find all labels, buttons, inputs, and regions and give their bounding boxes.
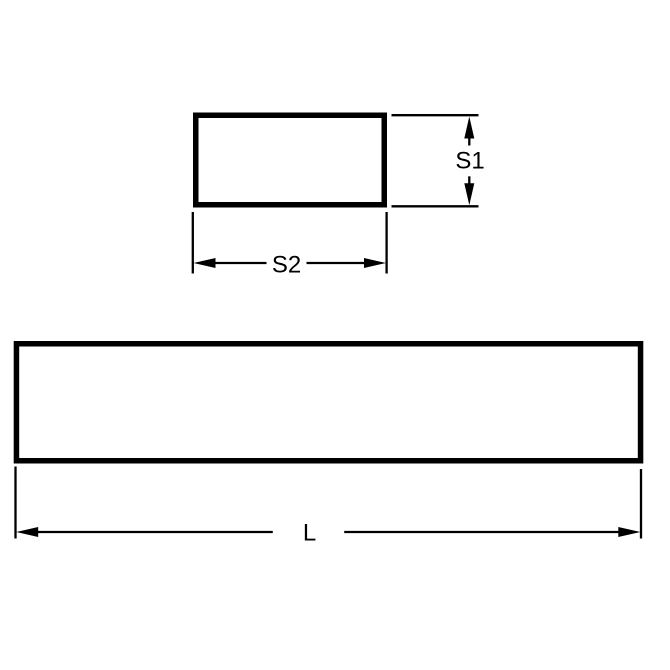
svg-text:S2: S2 <box>272 251 301 278</box>
svg-text:L: L <box>303 519 316 546</box>
svg-text:S1: S1 <box>455 147 484 174</box>
